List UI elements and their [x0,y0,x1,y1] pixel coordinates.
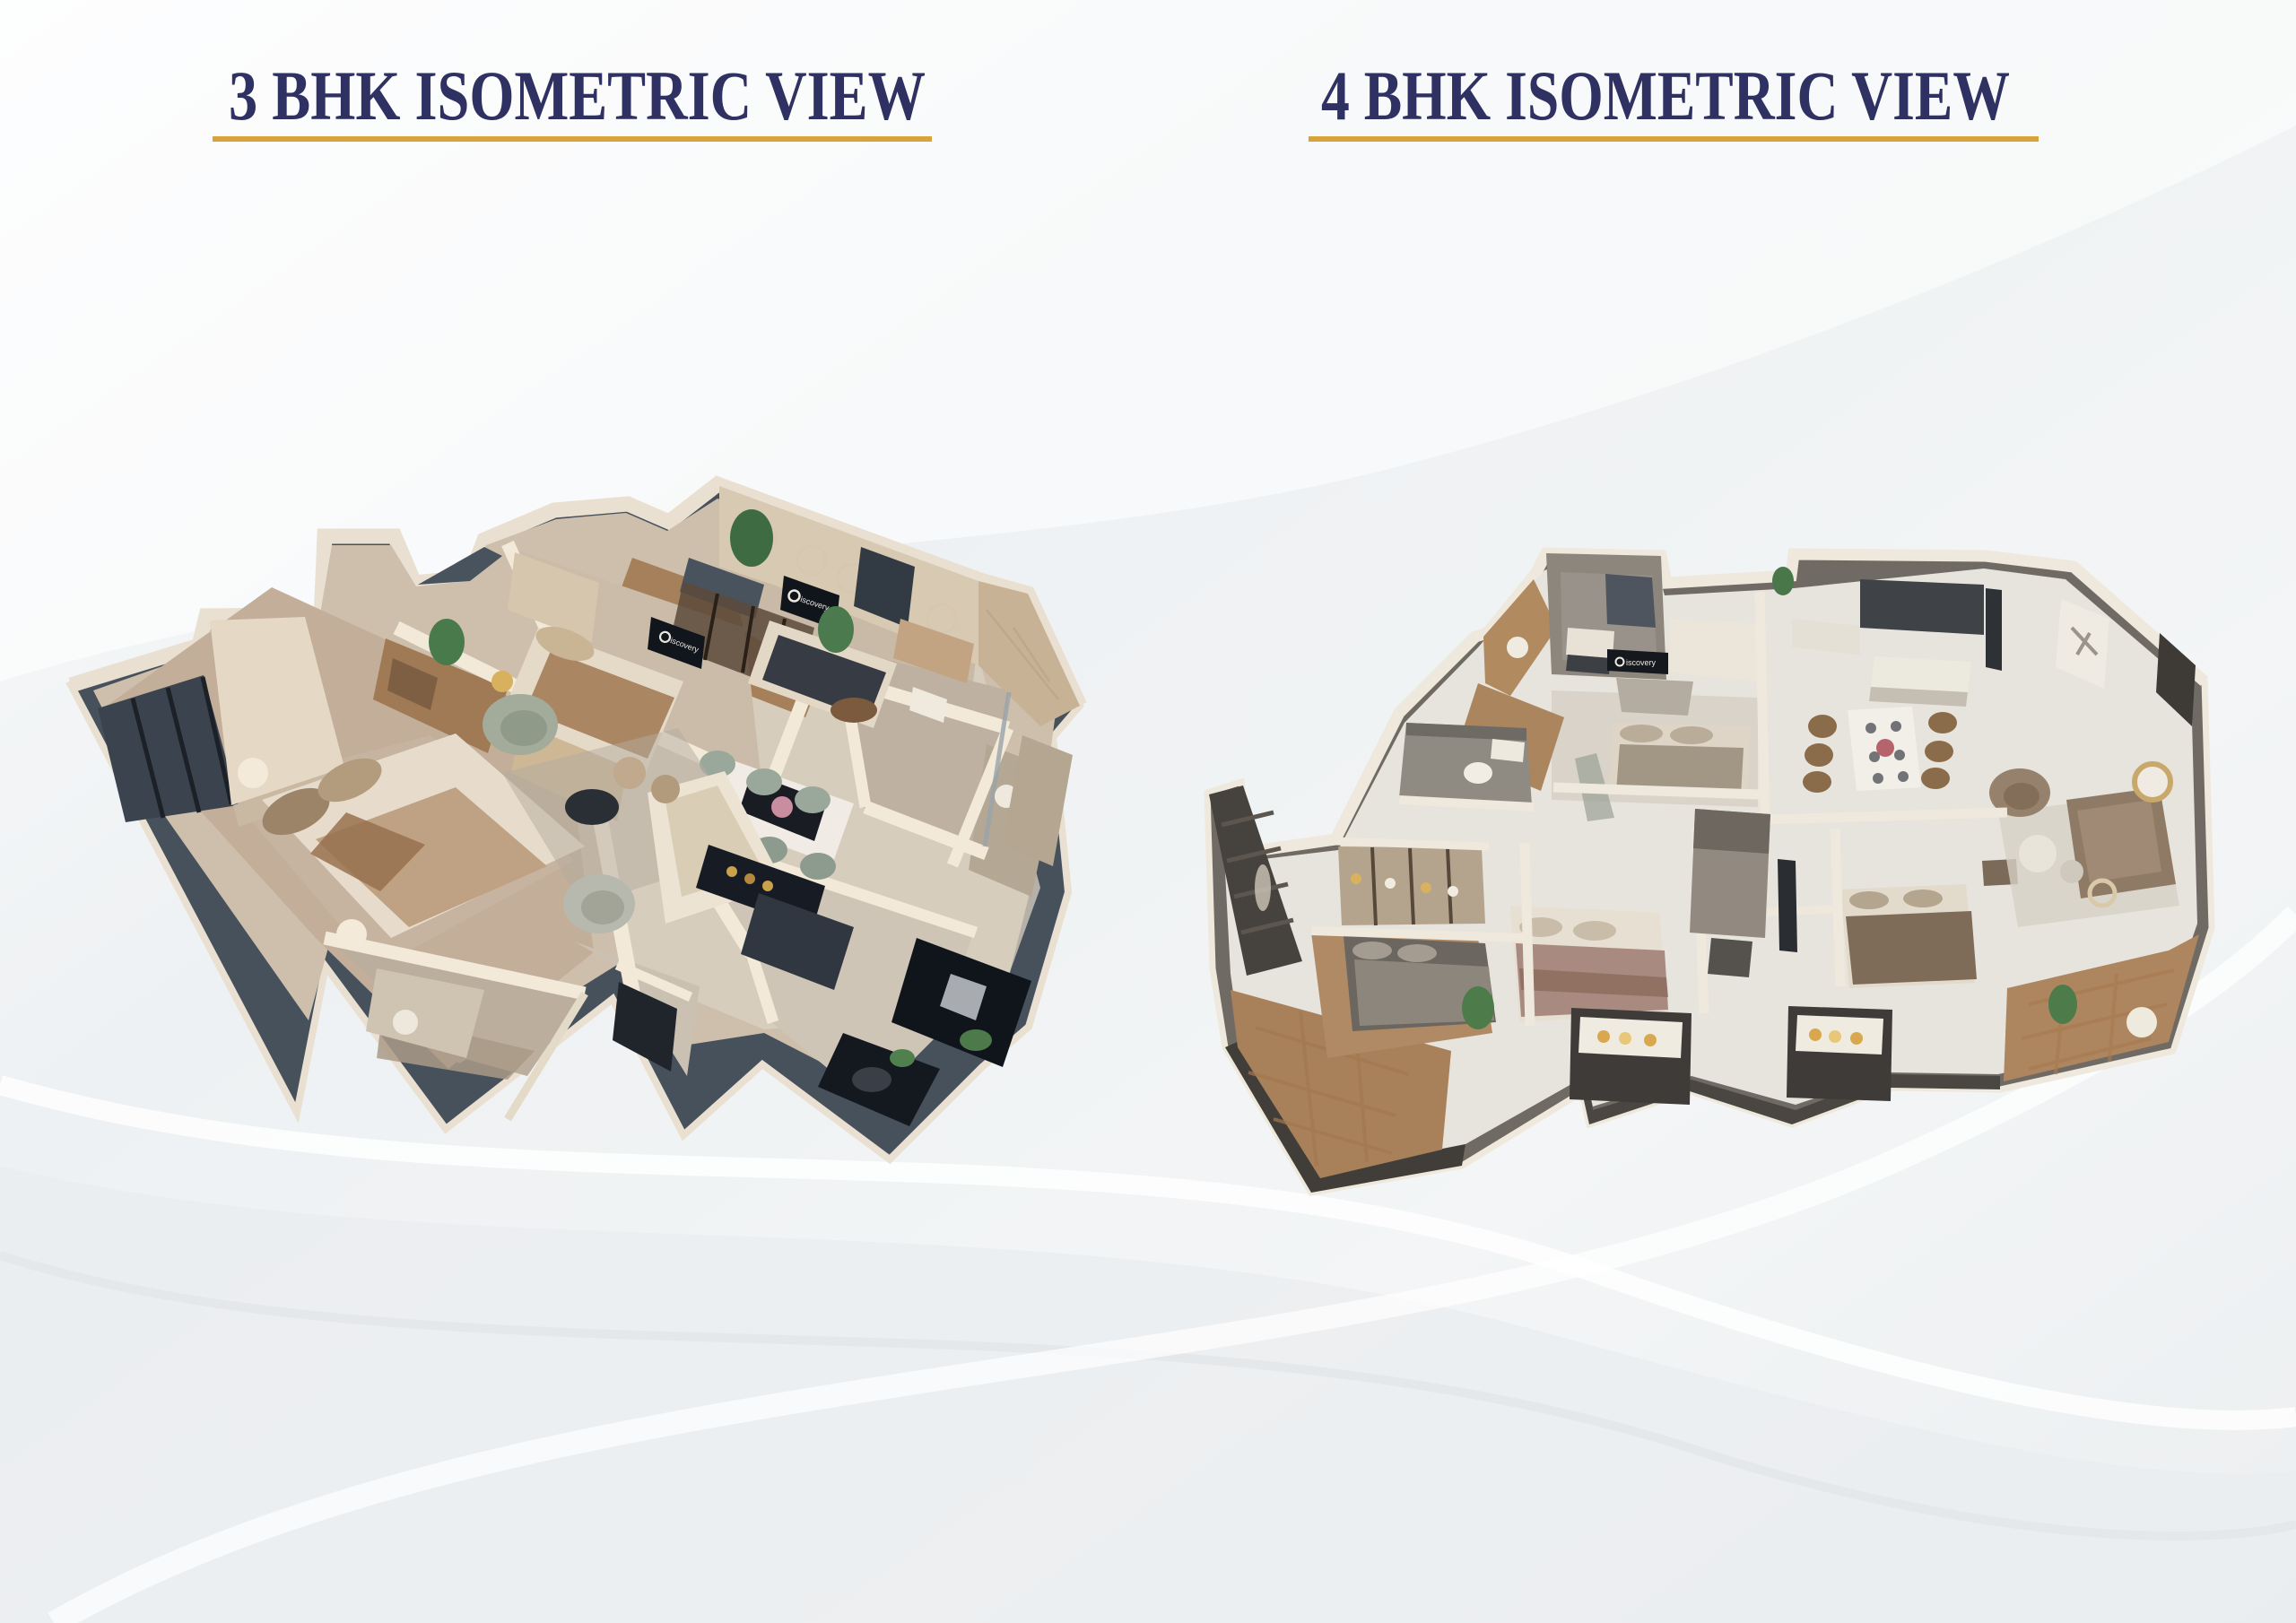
svg-text:4 BHK ISOMETRIC VIEW: 4 BHK ISOMETRIC VIEW [1321,56,2010,135]
svg-text:iscovery: iscovery [1626,658,1657,667]
svg-text:3 BHK ISOMETRIC VIEW: 3 BHK ISOMETRIC VIEW [229,56,926,135]
